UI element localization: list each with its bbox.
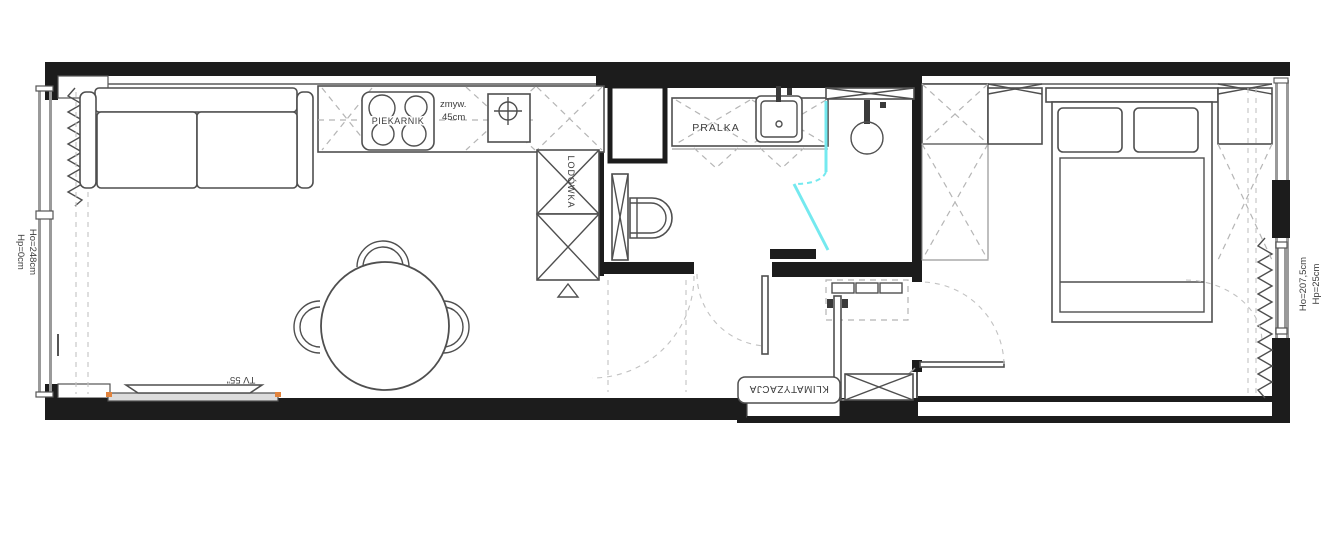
bottom-wall-entry — [840, 398, 918, 423]
tv-console — [108, 393, 278, 401]
window-right-lower-line2 — [1286, 238, 1289, 338]
right-wall-mid-block — [1272, 180, 1290, 238]
window-left-cap-bottom — [36, 392, 53, 397]
window-left-inner-line — [49, 90, 52, 392]
window-right-cap-top — [1276, 242, 1287, 248]
bed — [1046, 88, 1218, 322]
shower-glass-door — [794, 184, 828, 250]
bedroom-left-wall — [912, 76, 922, 282]
ac-unit: KLIMATYZACJA — [738, 377, 840, 403]
bathroom-door-leaf — [762, 276, 768, 354]
sofa-seat-right — [197, 112, 297, 188]
cabinet-chevron — [694, 148, 738, 168]
radiator-right — [1258, 238, 1272, 398]
pillow — [1134, 108, 1198, 152]
washing-machine-label: PRALKA — [692, 122, 739, 134]
dishwasher-label-line2: 45cm — [442, 112, 465, 123]
toilet — [612, 174, 672, 260]
tap-fitting — [787, 88, 792, 95]
shower-glass-swing — [794, 172, 826, 184]
washbasin — [756, 86, 802, 142]
sink-basin — [488, 94, 530, 142]
entry-niche-outer — [747, 416, 840, 423]
washbasin-outer — [756, 96, 802, 142]
chair — [294, 301, 320, 353]
sofa-seat-left — [97, 112, 197, 188]
cabinet-box — [1218, 88, 1272, 144]
console-drawer — [856, 283, 878, 293]
sofa-armrest-right — [297, 92, 313, 188]
shower-arm — [864, 100, 870, 124]
bed-headboard — [1046, 88, 1218, 102]
cabinet-left-top — [988, 84, 1042, 144]
bathroom-bottom-wall-step — [770, 249, 816, 259]
bathroom-bottom-wall-left — [604, 262, 694, 274]
bedroom-door-swing — [922, 282, 1004, 364]
wardrobe-left — [922, 84, 988, 260]
console-drawer — [880, 283, 902, 293]
shoe-cabinet — [845, 374, 913, 400]
tv-label: TV 55" — [227, 374, 256, 385]
bathroom-bottom-wall-right — [772, 262, 922, 277]
pillow — [1058, 108, 1122, 152]
floor-plan-drawing: TV 55" PIEKARNIK zmyw. 45cm — [0, 0, 1332, 537]
bathroom-door-swing — [697, 274, 765, 346]
dining-table — [294, 241, 469, 390]
door-handle — [842, 299, 848, 308]
tv — [126, 385, 262, 393]
window-right-height-label: Ho=207,5cm — [1298, 257, 1309, 311]
cabinet-chevron — [760, 148, 804, 168]
shower-head — [851, 122, 883, 154]
window-left-height-label: Ho=248cm — [27, 229, 38, 275]
washbasin-faucet — [776, 86, 781, 102]
sofa-armrest-left — [80, 92, 96, 188]
ventilation-shaft — [610, 86, 665, 161]
tv-zone: TV 55" — [106, 374, 281, 401]
kitchen: PIEKARNIK zmyw. 45cm LODÓWKA — [318, 86, 604, 297]
ac-label: KLIMATYZACJA — [749, 383, 829, 394]
window-right-upper — [1274, 78, 1289, 180]
fridge-tall-units: LODÓWKA — [537, 150, 599, 297]
console-marker-left — [106, 392, 112, 397]
wardrobe-cross — [1218, 144, 1272, 260]
console-drawer — [832, 283, 854, 293]
top-wall — [45, 62, 1290, 76]
bedroom — [920, 84, 1272, 394]
table-top — [321, 262, 449, 390]
chair — [300, 307, 320, 347]
door-direction-triangle — [558, 284, 578, 297]
right-wall-bottom-block — [1272, 338, 1290, 423]
hallway-door-swing — [592, 276, 694, 378]
wardrobe-cross — [1218, 144, 1272, 260]
kitchen-sink — [488, 94, 530, 142]
window-left-sill-label: Hp=0cm — [15, 234, 26, 270]
bottom-wall-bedroom-inner — [918, 396, 1272, 402]
sofa — [80, 88, 313, 188]
oven-label: PIEKARNIK — [372, 116, 425, 126]
window-right-upper-cap — [1274, 78, 1288, 83]
window-right-upper-line2 — [1286, 80, 1289, 180]
cabinet-box — [988, 88, 1042, 144]
window-left-cap-top — [36, 86, 53, 91]
dishwasher-label-line1: zmyw. — [440, 99, 466, 110]
bottom-left-step — [58, 384, 110, 398]
hallway: KLIMATYZACJA — [592, 274, 915, 403]
door-handle — [827, 299, 833, 308]
window-right-radiator-housing — [1278, 246, 1285, 330]
washer-counter: PRALKA — [672, 98, 828, 168]
window-right-sill-label: Hp=25cm — [1311, 263, 1322, 304]
fridge-label: LODÓWKA — [566, 155, 576, 208]
window-left-mullion — [36, 211, 53, 219]
floor-plan: TV 55" PIEKARNIK zmyw. 45cm — [0, 0, 1332, 537]
sofa-back — [95, 88, 297, 112]
bottom-wall-bedroom-outer — [918, 416, 1290, 423]
shower-mixer — [880, 102, 886, 108]
window-right-cap-bottom — [1276, 328, 1287, 334]
console-marker-right — [275, 392, 281, 397]
bedroom-door-leaf — [920, 362, 1004, 367]
cabinet-right-top — [1218, 84, 1272, 260]
window-right-upper-line1 — [1275, 80, 1278, 180]
